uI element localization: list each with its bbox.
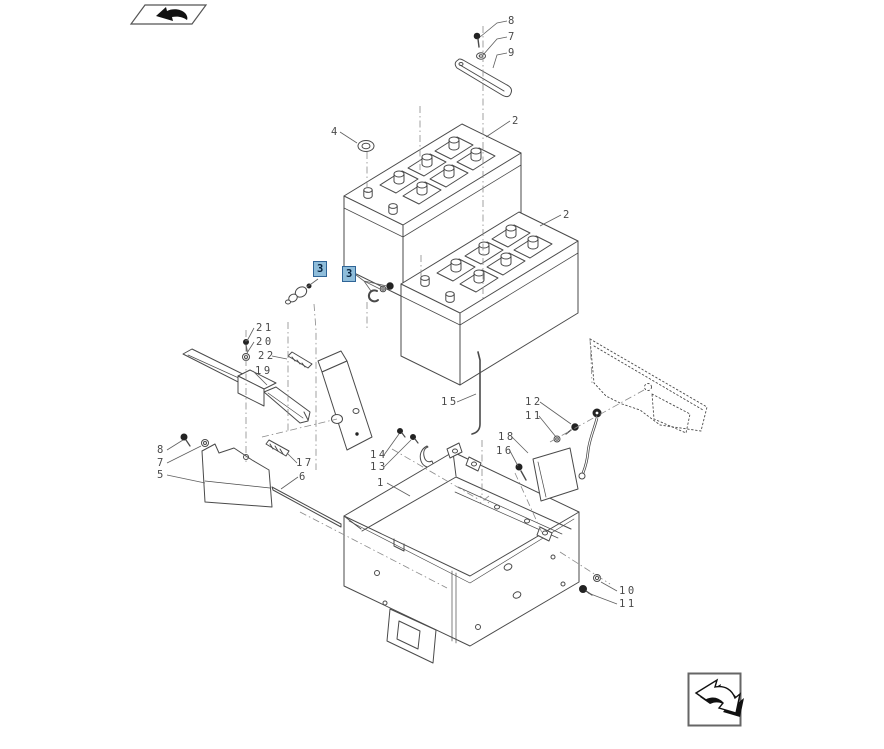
callout-layer: 8794223321202219151211181614131875176101… <box>0 0 884 749</box>
callout-19[interactable]: 19 <box>255 365 273 377</box>
callout-21[interactable]: 21 <box>256 322 274 334</box>
callout-3-highlighted[interactable]: 3 <box>342 266 356 282</box>
callout-2[interactable]: 2 <box>563 209 572 221</box>
callout-7[interactable]: 7 <box>508 31 517 43</box>
parts-catalog-figure: 8794223321202219151211181614131875176101… <box>0 0 884 749</box>
callout-4[interactable]: 4 <box>331 126 340 138</box>
callout-3-highlighted[interactable]: 3 <box>313 261 327 277</box>
callout-8[interactable]: 8 <box>508 15 517 27</box>
callout-1[interactable]: 1 <box>377 477 386 489</box>
callout-18[interactable]: 18 <box>498 431 516 443</box>
callout-11[interactable]: 11 <box>525 410 543 422</box>
callout-11[interactable]: 11 <box>619 598 637 610</box>
callout-9[interactable]: 9 <box>508 47 517 59</box>
callout-16[interactable]: 16 <box>496 445 514 457</box>
callout-8[interactable]: 8 <box>157 444 166 456</box>
callout-15[interactable]: 15 <box>441 396 459 408</box>
callout-6[interactable]: 6 <box>299 471 308 483</box>
callout-10[interactable]: 10 <box>619 585 637 597</box>
callout-7[interactable]: 7 <box>157 457 166 469</box>
callout-12[interactable]: 12 <box>525 396 543 408</box>
callout-22[interactable]: 22 <box>258 350 276 362</box>
callout-5[interactable]: 5 <box>157 469 166 481</box>
callout-13[interactable]: 13 <box>370 461 388 473</box>
callout-20[interactable]: 20 <box>256 336 274 348</box>
callout-14[interactable]: 14 <box>370 449 388 461</box>
callout-17[interactable]: 17 <box>296 457 314 469</box>
callout-2[interactable]: 2 <box>512 115 521 127</box>
